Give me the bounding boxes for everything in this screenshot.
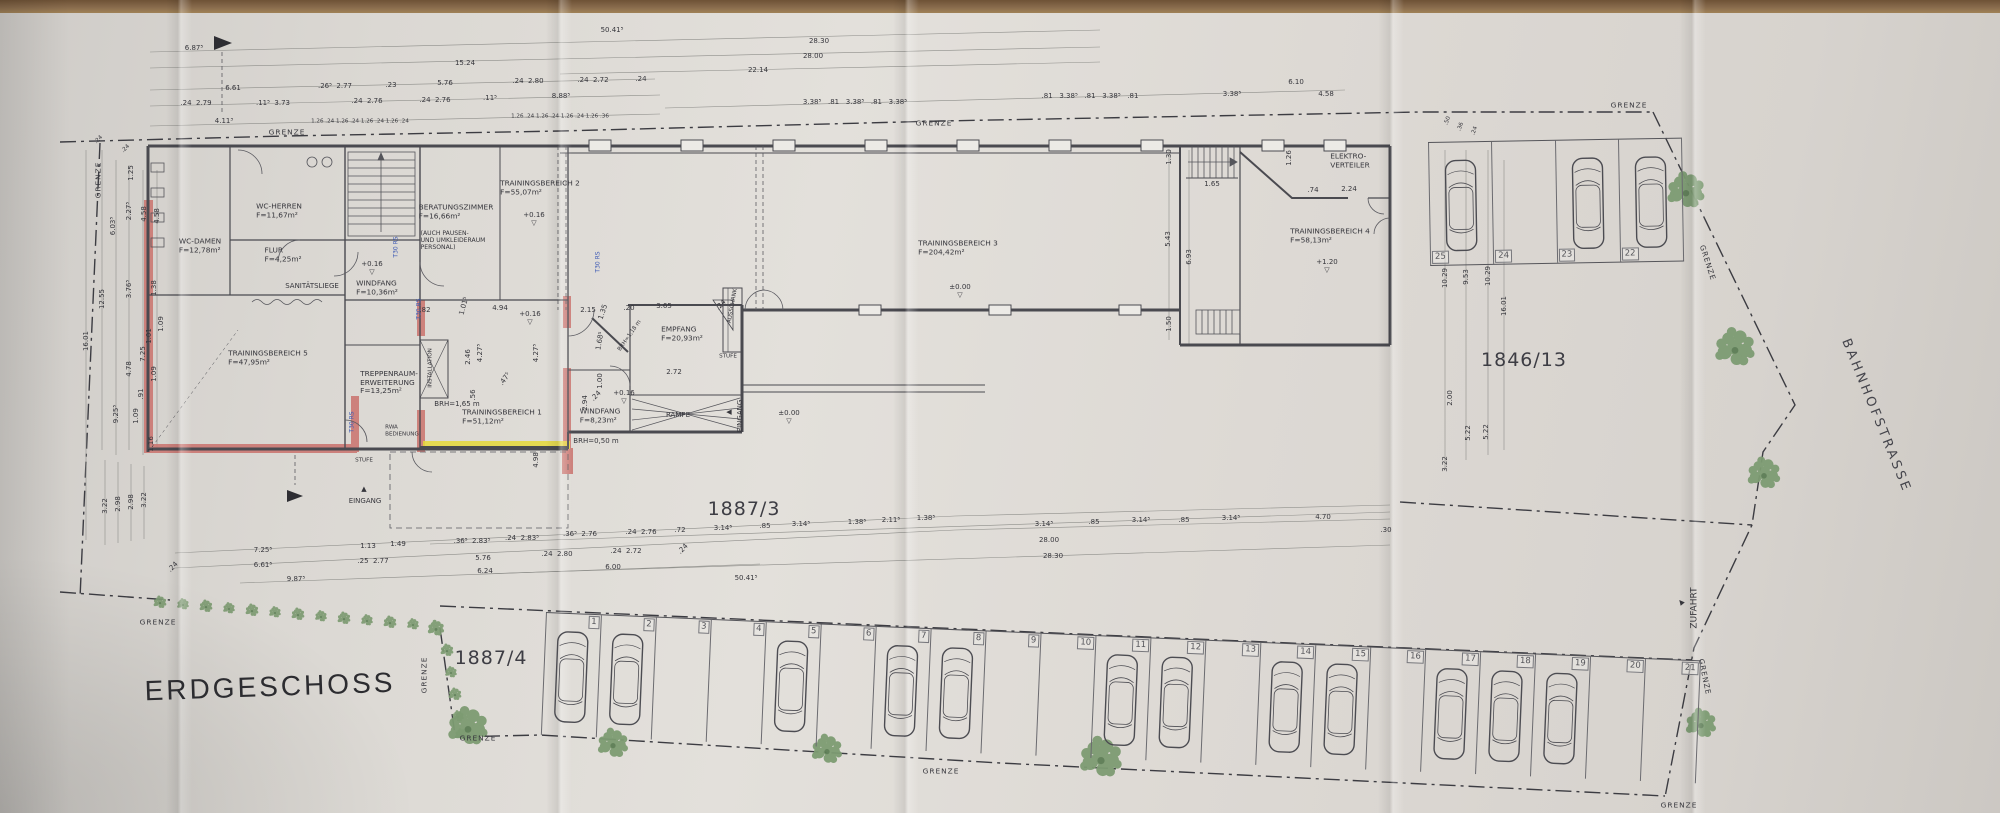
parking-stall: 6 xyxy=(816,625,876,749)
dimension-label: 16.01 xyxy=(82,331,90,351)
dimension-label: 6.03⁵ xyxy=(109,217,117,235)
dimension-label: 6.93 xyxy=(1185,249,1193,265)
dimension-label: .72 xyxy=(674,526,685,534)
dimension-label: 2.98 xyxy=(114,496,122,512)
dimension-label: .81 3.38⁵ .81 3.38⁵ .81 xyxy=(1042,92,1139,100)
car-icon xyxy=(1443,158,1479,255)
parking-stall: 19 xyxy=(1530,654,1590,778)
stall-number: 2 xyxy=(643,618,655,631)
dimension-label: 50.41⁵ xyxy=(735,574,758,582)
dimension-label: .24 2.83⁵ xyxy=(505,534,539,542)
dimension-label: 1.30 xyxy=(1165,149,1173,165)
car-icon xyxy=(1570,155,1606,252)
parking-row-right: 25 24 23 22 xyxy=(1428,138,1684,266)
stall-number: 19 xyxy=(1572,657,1589,671)
dimension-label: .24 2.76 xyxy=(351,97,382,105)
dimension-label: 1.38⁵ xyxy=(848,518,866,526)
wc-fixtures xyxy=(151,157,332,247)
dimension-label: 5.22 xyxy=(1482,424,1490,440)
dimension-label: 6.00 xyxy=(605,563,621,571)
dimension-label: 5.76 xyxy=(437,79,453,87)
dimension-label: 1.13 xyxy=(360,542,376,550)
dimension-label: 4.98 xyxy=(532,452,540,468)
dimension-label: .85 xyxy=(1178,516,1189,524)
parking-stall: 10 xyxy=(1035,634,1095,758)
dimension-label: .30 xyxy=(1380,526,1391,534)
dimension-label: .74 xyxy=(1307,186,1318,194)
dimension-label: 4.58 xyxy=(153,208,161,224)
dimension-label: 4.58 xyxy=(1318,90,1334,98)
grenze-label: GRENZE xyxy=(421,657,430,694)
room-label: WC-HERREN F=11,67m² xyxy=(256,202,302,219)
stall-number: 21 xyxy=(1682,662,1699,676)
annotation: STUFE xyxy=(719,354,737,361)
stall-number: 20 xyxy=(1627,659,1644,673)
dimension-label: 5.22 xyxy=(1464,425,1472,441)
dimension-label: 3.22 xyxy=(140,492,148,508)
entrance-label: EINGANG xyxy=(349,497,382,505)
dimension-label: 9.25⁵ xyxy=(112,405,120,423)
dimension-label: 3.14⁵ xyxy=(792,520,810,528)
stall-number: 12 xyxy=(1187,641,1204,655)
dimension-label: 1.26 .24 1.26 .24 1.26 .24 1.26 .24 xyxy=(311,119,409,126)
dimension-label: 4.27⁵ xyxy=(476,344,484,362)
dimension-label: 2.46 xyxy=(464,349,472,365)
dimension-label: 6.61 xyxy=(225,84,241,92)
level-marker: ±0.00 ▽ xyxy=(778,409,799,426)
stall-number: 8 xyxy=(973,632,985,645)
annotation: RWA BEDIENUNG xyxy=(385,424,419,437)
dimension-label: .24 2.72 xyxy=(610,547,641,555)
door-rating-label: T30 RS xyxy=(348,411,355,432)
grenze-label: GRENZE xyxy=(923,768,960,777)
annotation: BRH=0,50 m xyxy=(573,437,618,445)
dimension-label: 3.38⁵ .81 3.38⁵ .81 3.38⁵ xyxy=(803,98,907,106)
annotation: STUFE xyxy=(355,458,373,465)
dimension-label: 3.65 xyxy=(656,302,672,310)
room-label: TREPPENRAUM- ERWEITERUNG F=13,25m² xyxy=(360,370,418,396)
dimension-label: 4.58 xyxy=(140,206,148,222)
parking-stall: 20 xyxy=(1585,657,1645,781)
dimension-label: 9.53 xyxy=(1462,269,1470,285)
dimension-label: 2.27⁵ xyxy=(125,202,133,220)
parking-stall: 24 xyxy=(1491,141,1556,264)
dimension-label: 1.00 xyxy=(596,373,604,389)
dimension-label: 3.38⁵ xyxy=(1223,90,1241,98)
dimension-label: 4.94 xyxy=(492,304,508,312)
entrance-arrow-icon: ◀ xyxy=(726,408,731,416)
dimension-label: 10.29 xyxy=(1441,268,1449,288)
dimension-label: 3.22 xyxy=(101,498,109,514)
dimension-label: 1.26 .24 1.26 .24 1.26 .24 1.26 .36 xyxy=(511,114,609,121)
dimension-label: 1.09 xyxy=(157,316,165,332)
room-label: EMPFANG F=20,93m² xyxy=(661,325,703,342)
car-icon xyxy=(607,631,645,728)
car-icon xyxy=(1102,652,1140,749)
level-marker: +0.16 ▽ xyxy=(361,260,382,277)
parking-stall: 4 xyxy=(706,620,766,744)
dimension-label: 12.55 xyxy=(98,289,106,309)
stall-number: 4 xyxy=(753,623,765,636)
parking-stall: 22 xyxy=(1618,139,1684,262)
parking-stall: 7 xyxy=(871,627,931,751)
dimension-label: 28.30 xyxy=(1043,552,1063,560)
car-icon xyxy=(772,638,810,735)
parcel-label: 1846/13 xyxy=(1481,349,1567,371)
parking-stall: 12 xyxy=(1145,638,1205,762)
stall-number: 13 xyxy=(1242,643,1259,657)
dimension-label: 6.10 xyxy=(1288,78,1304,86)
parking-stall: 11 xyxy=(1090,636,1150,760)
car-icon xyxy=(1541,670,1579,767)
parking-stall: 9 xyxy=(980,631,1040,755)
building-walls xyxy=(148,146,1390,452)
dimension-label: 3.22 xyxy=(1441,456,1449,472)
stall-number: 16 xyxy=(1407,650,1424,664)
stall-number: 3 xyxy=(698,620,710,633)
dimension-label: 1.38 xyxy=(150,280,158,296)
dimension-label: 1.09 xyxy=(132,408,140,424)
dimension-label: 3.14⁵ xyxy=(1035,520,1053,528)
dimension-label: 1.50 xyxy=(1165,316,1173,332)
dimension-label: 9.87⁵ xyxy=(287,575,305,583)
car-icon xyxy=(1432,666,1470,763)
level-marker: ±0.00 ▽ xyxy=(949,283,970,300)
door-rating-label: T30 RS xyxy=(392,236,399,257)
dimension-label: 28.00 xyxy=(803,52,823,60)
dimension-label: 6.87⁵ xyxy=(185,44,203,52)
dimension-label: 5.43 xyxy=(1164,231,1172,247)
dimension-label: 3.14⁵ xyxy=(1222,514,1240,522)
entrance-label: EINGANG xyxy=(736,400,744,433)
dimension-label: 1.25 xyxy=(127,165,135,181)
dimension-label: 2.94 xyxy=(581,395,589,411)
grenze-label: GRENZE xyxy=(1661,802,1698,811)
room-label: TRAININGSBEREICH 4 F=58,13m² xyxy=(1290,227,1370,244)
stall-number: 24 xyxy=(1495,250,1512,263)
level-marker: +1.20 ▽ xyxy=(1316,258,1337,275)
annotation: SANITÄTSLIEGE xyxy=(285,282,339,290)
grenze-label: GRENZE xyxy=(460,735,497,744)
stall-number: 6 xyxy=(863,627,875,640)
grenze-label: GRENZE xyxy=(95,162,104,199)
dimension-label: .24 2.79 xyxy=(180,99,211,107)
dimension-label: .85 xyxy=(759,522,770,530)
room-label: TRAININGSBEREICH 3 F=204,42m² xyxy=(918,239,998,256)
dimension-label: 4.70 xyxy=(1315,513,1331,521)
dimension-label: 3.14⁵ xyxy=(1132,516,1150,524)
room-label: BERATUNGSZIMMER F=16,66m² xyxy=(419,203,494,220)
dimension-label: 22.14 xyxy=(748,66,768,74)
dimension-label: 3.14⁵ xyxy=(714,524,732,532)
entrance-arrow-icon: ▲ xyxy=(361,485,366,493)
dimension-label: .25 2.77 xyxy=(357,557,388,565)
dimension-label: .36⁵ 2.83⁵ xyxy=(454,537,491,545)
parcel-label: 1887/4 xyxy=(455,647,528,669)
dimension-label: .24 2.72 xyxy=(577,76,608,84)
stall-number: 17 xyxy=(1462,652,1479,666)
dimension-label: 1.16 xyxy=(147,436,155,452)
dimension-label: 28.30 xyxy=(809,37,829,45)
dimension-label: 1.38⁵ xyxy=(917,514,935,522)
dimension-label: .82 xyxy=(419,306,430,314)
dimension-label: .85 xyxy=(1088,518,1099,526)
access-label: ZUFAHRT xyxy=(1690,587,1701,628)
car-icon xyxy=(1267,659,1305,756)
stall-number: 9 xyxy=(1028,634,1040,647)
level-marker: +0.16 ▽ xyxy=(523,211,544,228)
parking-stall: 8 xyxy=(926,629,986,753)
dimension-label: .11⁵ 3.73 xyxy=(256,99,290,107)
dimension-label: 2.24 xyxy=(1341,185,1357,193)
annotation: BRH=1,65 m xyxy=(434,400,479,408)
dimension-label: .26⁵ 2.77 xyxy=(318,82,352,90)
stall-number: 10 xyxy=(1077,636,1094,650)
stall-number: 7 xyxy=(918,630,930,643)
parking-stall: 13 xyxy=(1200,641,1260,765)
room-label: WINDFANG F=10,36m² xyxy=(356,279,398,296)
dimension-label: 4.11³ xyxy=(215,117,233,125)
dimension-label: .24 2.80 xyxy=(541,550,572,558)
stall-number: 15 xyxy=(1352,648,1369,662)
room-label: FLUR F=4,25m² xyxy=(264,246,301,263)
car-icon xyxy=(1157,654,1195,751)
parking-stall: 18 xyxy=(1475,652,1535,776)
room-note: (AUCH PAUSEN- UND UMKLEIDERAUM PERSONAL) xyxy=(421,230,486,252)
parking-stall: 5 xyxy=(761,622,821,746)
dimension-label: 2.00 xyxy=(1446,390,1454,406)
grenze-label: GRENZE xyxy=(269,129,306,138)
stall-number: 14 xyxy=(1297,645,1314,659)
dimension-label: 2.15 xyxy=(580,306,596,314)
parking-stall: 23 xyxy=(1554,140,1619,263)
dimension-label: 6.61⁵ xyxy=(254,561,272,569)
annotation: INSTALLATION xyxy=(428,348,435,388)
dimension-label: .11⁵ xyxy=(483,94,497,102)
dimension-label: .56 xyxy=(469,389,477,400)
dimension-label: .24 xyxy=(635,75,646,83)
stall-number: 18 xyxy=(1517,655,1534,669)
car-icon xyxy=(1486,668,1524,765)
room-label: TRAININGSBEREICH 2 F=55,07m² xyxy=(500,179,580,196)
stall-number: 1 xyxy=(588,616,600,629)
parking-stall: 25 xyxy=(1428,142,1493,265)
room-label: TRAININGSBEREICH 5 F=47,95m² xyxy=(228,349,308,366)
dimension-label: 16.01 xyxy=(1500,296,1508,316)
parking-stall: 21 xyxy=(1640,659,1701,783)
grenze-label: GRENZE xyxy=(1611,102,1648,111)
dimension-label: 4.27⁵ xyxy=(532,344,540,362)
annotation: RAMPE xyxy=(666,411,690,419)
grenze-label: GRENZE xyxy=(916,120,953,129)
dimension-label: 3.76⁵ xyxy=(125,280,133,298)
dimension-label: 4.78 xyxy=(125,361,133,377)
car-icon xyxy=(1633,154,1669,251)
dimension-label: .24 2.76 xyxy=(419,96,450,104)
stall-number: 11 xyxy=(1132,639,1149,653)
dimension-label: 7.25 xyxy=(139,346,147,362)
car-icon xyxy=(937,645,975,742)
dimension-label: 7.25⁵ xyxy=(254,546,272,554)
dimension-label: 2.98 xyxy=(127,494,135,510)
dimension-label: .24 2.80 xyxy=(512,77,543,85)
level-marker: +0.16 ▽ xyxy=(613,389,634,406)
parking-stall: 3 xyxy=(651,618,711,742)
dimension-label: 1.26 xyxy=(1285,150,1293,166)
dimension-label: 15.24 xyxy=(455,59,475,67)
room-label: ELEKTRO- VERTEILER xyxy=(1330,152,1370,169)
car-icon xyxy=(1322,661,1360,758)
dimension-label: 2.11⁵ xyxy=(882,516,900,524)
parking-stall: 14 xyxy=(1255,643,1315,767)
dimension-label: 1.65 xyxy=(1204,180,1220,188)
grenze-label: GRENZE xyxy=(140,619,177,628)
dimension-label: 8.88⁵ xyxy=(552,92,570,100)
couch-squiggle xyxy=(252,300,322,305)
door-rating-label: T30 RS xyxy=(594,251,601,272)
parking-stall: 15 xyxy=(1310,645,1370,769)
room-label: WC-DAMEN F=12,78m² xyxy=(179,237,221,254)
parking-stall: 16 xyxy=(1365,648,1425,772)
dimension-label: 28.00 xyxy=(1039,536,1059,544)
dimension-label: .36⁵ 2.76 xyxy=(563,530,597,538)
dimension-lines xyxy=(86,30,1504,583)
dimension-label: .20 xyxy=(623,304,634,312)
dimension-label: 1.49 xyxy=(390,540,406,548)
room-label: TRAININGSBEREICH 1 F=51,12m² xyxy=(462,408,542,425)
parking-stall: 17 xyxy=(1420,650,1480,774)
parking-stall: 1 xyxy=(541,613,601,737)
dimension-label: 1.09 xyxy=(150,366,158,382)
dimension-label: 5.76 xyxy=(475,554,491,562)
dimension-label: .23 xyxy=(385,81,396,89)
dimension-label: 2.72 xyxy=(666,368,682,376)
level-marker: +0.16 ▽ xyxy=(519,310,540,327)
dimension-label: .91 xyxy=(137,388,145,399)
dimension-label: 50.41⁵ xyxy=(601,26,624,34)
car-icon xyxy=(552,629,590,726)
parking-stall: 2 xyxy=(596,615,656,739)
stall-number: 5 xyxy=(808,625,820,638)
dimension-label: 10.29 xyxy=(1484,266,1492,286)
dimension-label: 1.01 xyxy=(145,328,153,344)
dimension-label: 6.24 xyxy=(477,567,493,575)
parcel-label: 1887/3 xyxy=(708,498,781,520)
dimension-label: .24 2.76 xyxy=(625,528,656,536)
photo-of-floor-plan: TRAININGSBEREICH 5 F=47,95m²TRAININGSBER… xyxy=(0,0,2000,813)
car-icon xyxy=(882,643,920,740)
